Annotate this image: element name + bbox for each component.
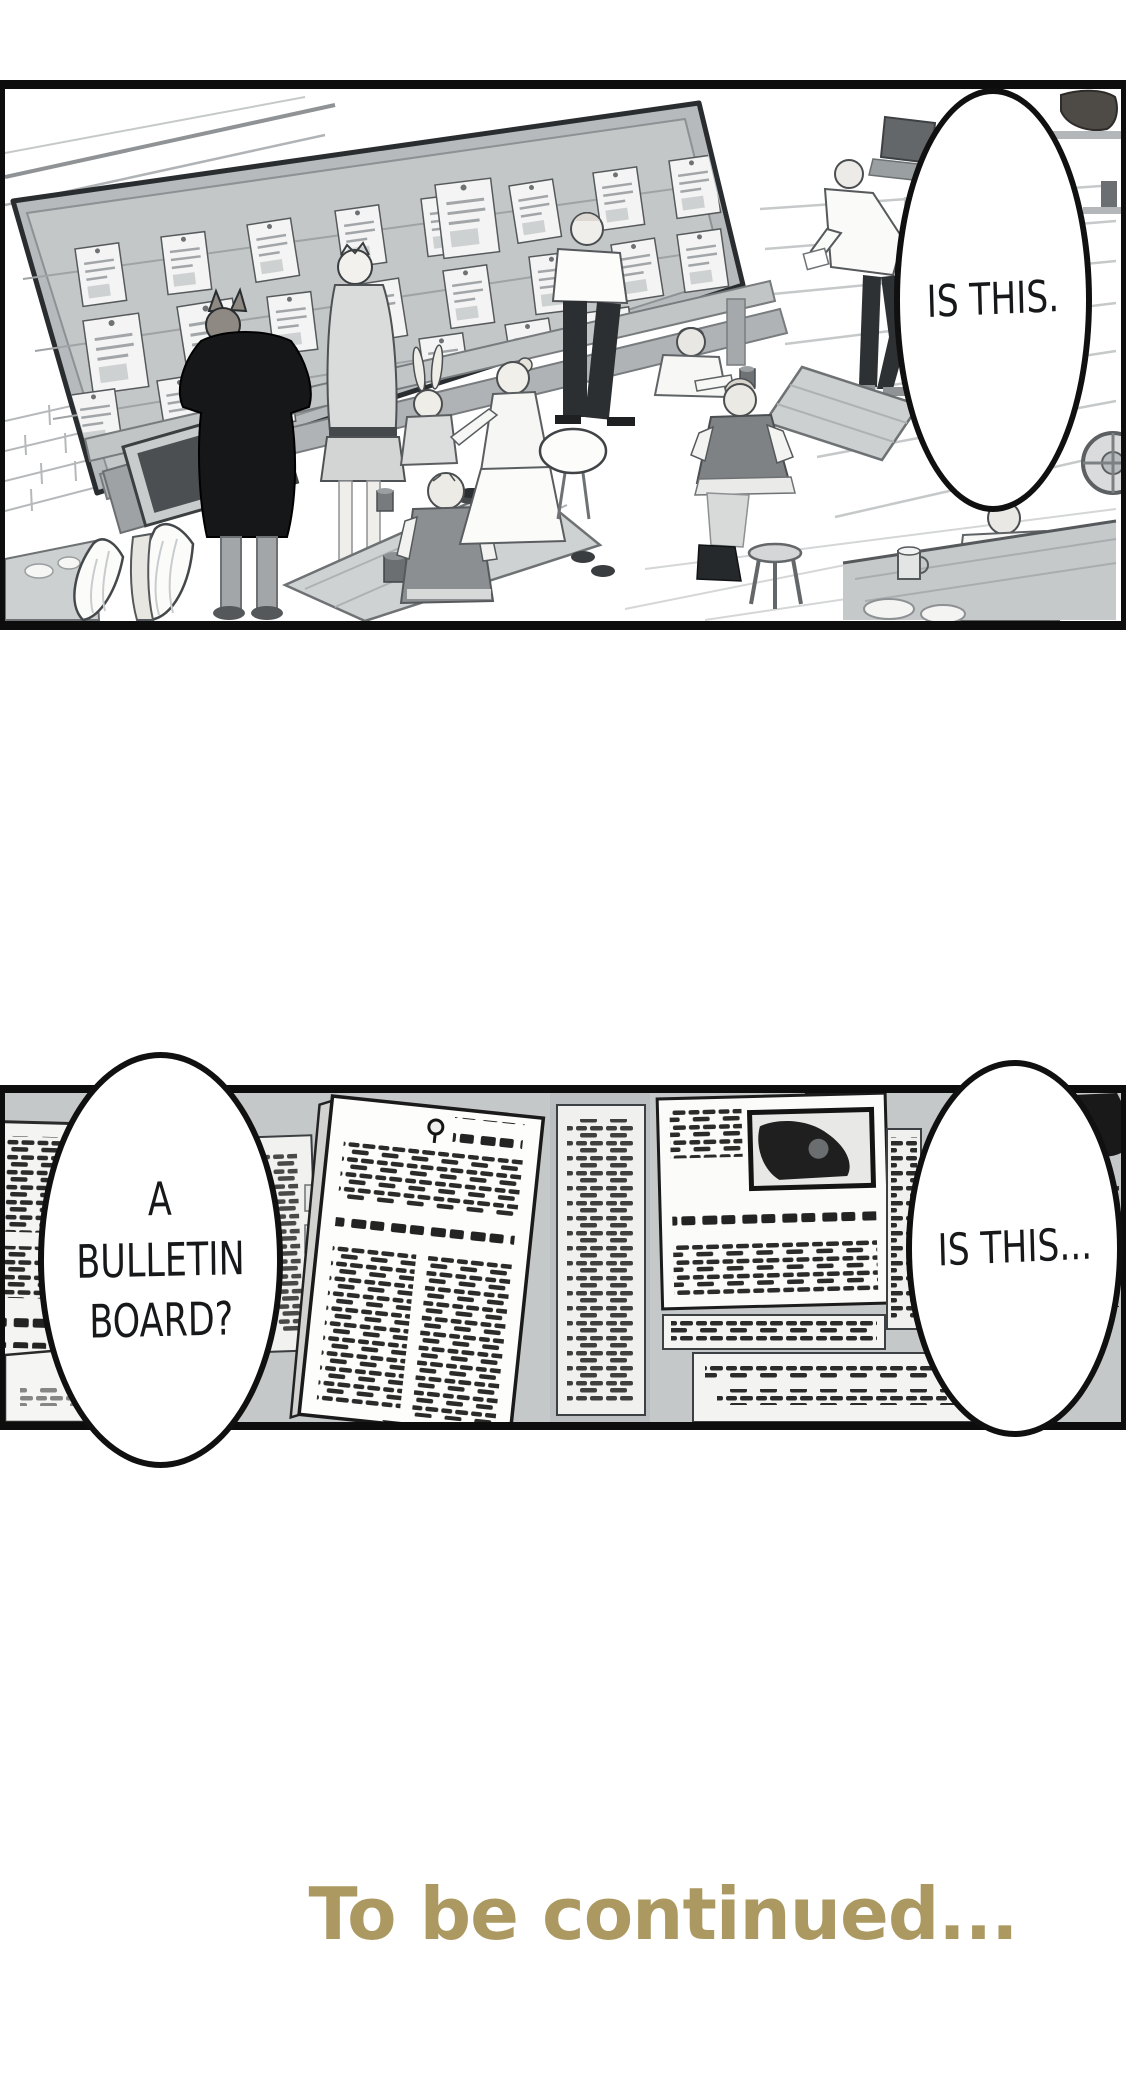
speech-bubble-text: IS THIS... [937, 1216, 1093, 1281]
manga-page: IS THIS. A BULLETINBOARD? IS THIS... To … [0, 0, 1126, 2078]
speech-bubble-a-bulletin-board: A BULLETINBOARD? [38, 1052, 283, 1468]
figure-walking-man [800, 160, 909, 401]
to-be-continued-text: To be continued... [228, 1872, 1098, 1956]
bubble-line-1: A BULLETIN [76, 1172, 245, 1289]
big-notice [286, 1095, 543, 1422]
bottom-right-diner [843, 502, 1116, 621]
bubble-line-2: BOARD? [89, 1292, 234, 1349]
speech-bubble-is-this-ellipsis: IS THIS... [906, 1060, 1123, 1437]
angel-wings [74, 524, 193, 620]
wanted-poster [657, 1093, 890, 1309]
poster-mid-right [557, 1105, 645, 1415]
speech-bubble-is-this: IS THIS. [894, 88, 1092, 512]
wagon-wheel [1083, 433, 1121, 493]
speech-bubble-text: IS THIS. [926, 268, 1060, 332]
speech-bubble-text: A BULLETINBOARD? [71, 1167, 250, 1353]
